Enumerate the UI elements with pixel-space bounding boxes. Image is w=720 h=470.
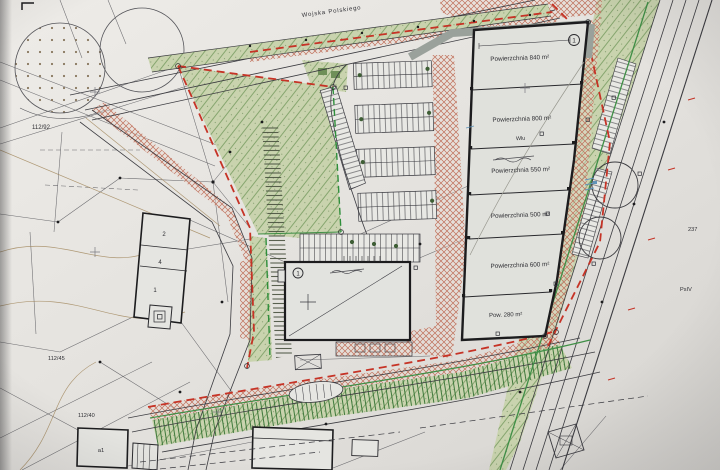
site-plan-drawing: 1 Powierzchnia 840 m² Powierzchnia 800 m… <box>0 0 720 470</box>
scanned-site-plan-photo: 1 Powierzchnia 840 m² Powierzchnia 800 m… <box>0 0 720 470</box>
photo-vignette <box>0 0 720 470</box>
